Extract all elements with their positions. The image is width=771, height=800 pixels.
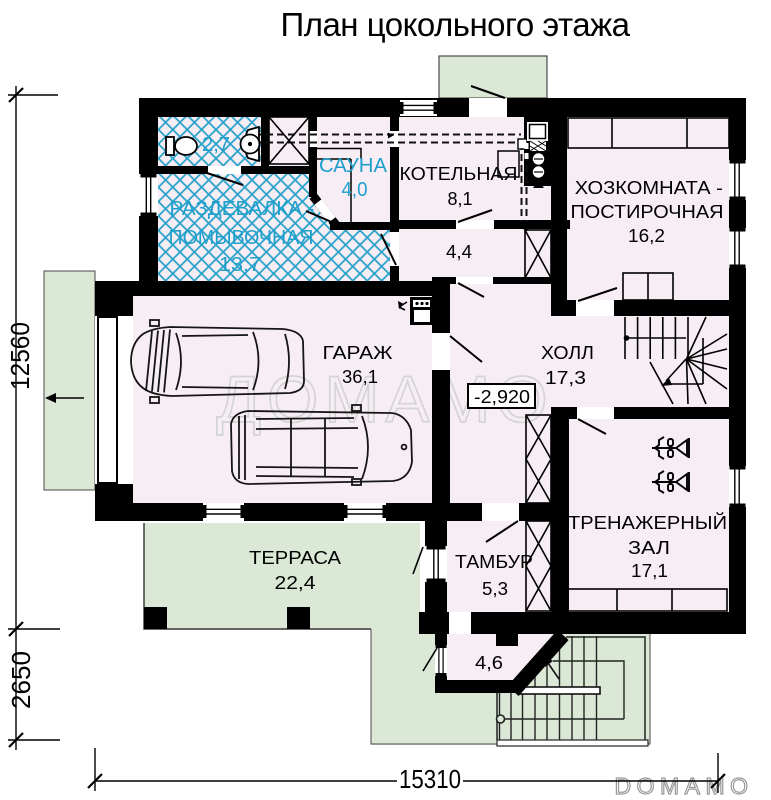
- svg-text:План цокольного этажа: План цокольного этажа: [280, 6, 630, 43]
- svg-text:12560: 12560: [5, 322, 35, 390]
- svg-text:17,3: 17,3: [545, 368, 586, 388]
- svg-text:ПОСТИРОЧНАЯ: ПОСТИРОЧНАЯ: [571, 202, 724, 222]
- svg-text:4,4: 4,4: [446, 242, 472, 262]
- svg-text:4,6: 4,6: [475, 653, 503, 673]
- svg-text:8,1: 8,1: [448, 189, 473, 209]
- svg-text:КОТЕЛЬНАЯ: КОТЕЛЬНАЯ: [400, 164, 518, 184]
- svg-text:ГАРАЖ: ГАРАЖ: [323, 343, 393, 363]
- svg-text:ХОЛЛ: ХОЛЛ: [541, 343, 594, 363]
- svg-text:15310: 15310: [399, 764, 461, 794]
- svg-text:РАЗДЕВАЛКА -: РАЗДЕВАЛКА -: [170, 198, 315, 220]
- svg-text:16,2: 16,2: [628, 226, 665, 246]
- svg-text:13,7: 13,7: [219, 254, 261, 276]
- svg-text:ТРЕНАЖЕРНЫЙ: ТРЕНАЖЕРНЫЙ: [568, 512, 727, 533]
- svg-text:36,1: 36,1: [342, 367, 378, 387]
- svg-text:-2,920: -2,920: [474, 387, 530, 407]
- svg-text:DOMAMO: DOMAMO: [614, 773, 753, 799]
- svg-text:ТАМБУР: ТАМБУР: [455, 552, 533, 572]
- svg-text:ТЕРРАСА: ТЕРРАСА: [249, 548, 341, 568]
- svg-text:5,3: 5,3: [482, 579, 508, 599]
- svg-text:4,0: 4,0: [342, 179, 368, 201]
- svg-text:ЗАЛ: ЗАЛ: [628, 538, 670, 558]
- svg-text:17,1: 17,1: [631, 561, 668, 581]
- svg-text:2650: 2650: [6, 651, 36, 709]
- svg-text:ПОМЫВОЧНАЯ: ПОМЫВОЧНАЯ: [169, 227, 314, 249]
- svg-text:2,7: 2,7: [202, 134, 230, 156]
- svg-text:22,4: 22,4: [275, 573, 316, 593]
- svg-text:ХОЗКОМНАТА -: ХОЗКОМНАТА -: [575, 178, 723, 198]
- svg-text:САУНА: САУНА: [319, 155, 388, 177]
